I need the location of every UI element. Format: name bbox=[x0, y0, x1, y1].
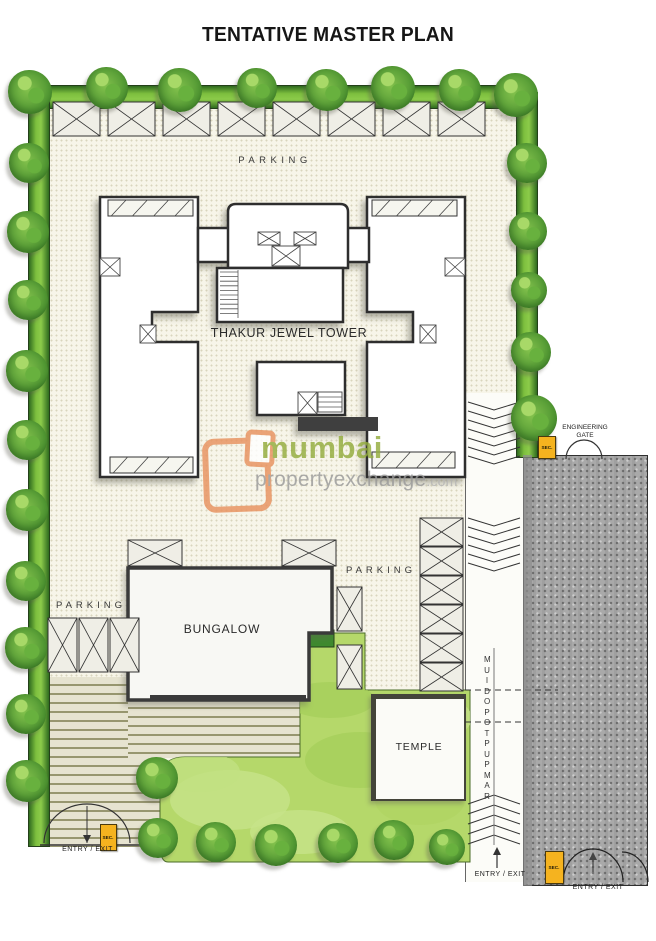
tree bbox=[8, 70, 52, 114]
master-plan-canvas: TENTATIVE MASTER PLAN mumbai propertyexc… bbox=[0, 0, 656, 941]
entry-exit-label-ramp: ENTRY / EXIT bbox=[462, 871, 538, 878]
ramp-label: MUIDOP OT PU PMAR bbox=[484, 655, 492, 802]
security-cabin-engineering: SEC. bbox=[538, 436, 556, 459]
watermark-brand-bottom-text: propertyexchange bbox=[255, 468, 426, 491]
parking-label-left: PARKING bbox=[38, 600, 144, 611]
parking-stall bbox=[420, 518, 463, 546]
watermark-brand-top: mumbai bbox=[261, 430, 383, 466]
engineering-gate-label: ENGINEERING GATE bbox=[556, 424, 614, 440]
lift-shaft-box bbox=[272, 246, 300, 266]
tree bbox=[511, 395, 557, 441]
lobby-box bbox=[318, 392, 342, 412]
tree bbox=[158, 68, 202, 112]
lift-shaft-box bbox=[294, 232, 316, 245]
tree bbox=[237, 68, 277, 108]
tree bbox=[306, 69, 348, 111]
lift-shaft-box bbox=[445, 258, 465, 276]
parking-stall bbox=[420, 547, 463, 575]
tree bbox=[371, 66, 415, 110]
tree bbox=[494, 73, 538, 117]
parking-stall bbox=[110, 618, 139, 672]
parking-label-middle: PARKING bbox=[338, 565, 424, 576]
tower-label: THAKUR JEWEL TOWER bbox=[189, 326, 389, 340]
tower-stall-hatch bbox=[108, 200, 193, 216]
security-cabin-road: SEC. bbox=[545, 851, 564, 884]
tree bbox=[6, 694, 46, 734]
parking-label-top: PARKING bbox=[195, 155, 355, 166]
tree bbox=[138, 818, 178, 858]
tree bbox=[429, 829, 465, 865]
parking-stall bbox=[420, 605, 463, 633]
entry-exit-label-road: ENTRY / EXIT bbox=[556, 884, 640, 891]
tree bbox=[196, 822, 236, 862]
lift-shaft-box bbox=[140, 325, 156, 343]
tree bbox=[439, 69, 481, 111]
parking-stall bbox=[128, 540, 182, 566]
tree bbox=[6, 760, 48, 802]
tree bbox=[9, 143, 49, 183]
tree bbox=[374, 820, 414, 860]
parking-stall bbox=[273, 102, 320, 136]
tower-stall-hatch bbox=[372, 200, 457, 216]
tree bbox=[511, 272, 547, 308]
lift-shaft-box bbox=[420, 325, 436, 343]
tree bbox=[511, 332, 551, 372]
tree bbox=[255, 824, 297, 866]
parking-stall bbox=[420, 663, 463, 691]
tower-stall-hatch bbox=[110, 457, 193, 473]
parking-stall bbox=[337, 645, 362, 689]
tree bbox=[5, 627, 47, 669]
tree bbox=[136, 757, 178, 799]
tree bbox=[6, 489, 48, 531]
lift-shaft-box bbox=[100, 258, 120, 276]
watermark: mumbai propertyexchange.com bbox=[195, 428, 470, 513]
driveway-markings bbox=[465, 402, 558, 845]
entry-exit-label-left: ENTRY / EXIT bbox=[40, 846, 135, 853]
tree bbox=[8, 280, 48, 320]
tree bbox=[86, 67, 128, 109]
temple-label: TEMPLE bbox=[378, 741, 460, 753]
parking-stall bbox=[337, 587, 362, 631]
tree bbox=[509, 212, 547, 250]
watermark-brand-tld: .com bbox=[426, 473, 457, 489]
lift-shaft-box bbox=[258, 232, 280, 245]
security-cabin-label: SEC. bbox=[103, 835, 114, 840]
parking-stall bbox=[420, 634, 463, 662]
tree bbox=[7, 420, 47, 460]
bungalow-label: BUNGALOW bbox=[152, 622, 292, 636]
lift-shaft-box bbox=[298, 392, 317, 414]
tree bbox=[7, 211, 49, 253]
security-cabin-label: SEC. bbox=[542, 445, 553, 450]
tree bbox=[6, 350, 48, 392]
parking-stall bbox=[79, 618, 108, 672]
watermark-brand-bottom: propertyexchange.com bbox=[255, 468, 457, 492]
parking-stall bbox=[420, 576, 463, 604]
page-title: TENTATIVE MASTER PLAN bbox=[13, 24, 643, 47]
tree bbox=[6, 561, 46, 601]
parking-stall bbox=[282, 540, 336, 566]
tree bbox=[507, 143, 547, 183]
parking-stall bbox=[53, 102, 100, 136]
parking-stall bbox=[48, 618, 77, 672]
road-edge bbox=[523, 455, 532, 886]
security-cabin-label: SEC. bbox=[549, 865, 560, 870]
tree bbox=[318, 823, 358, 863]
